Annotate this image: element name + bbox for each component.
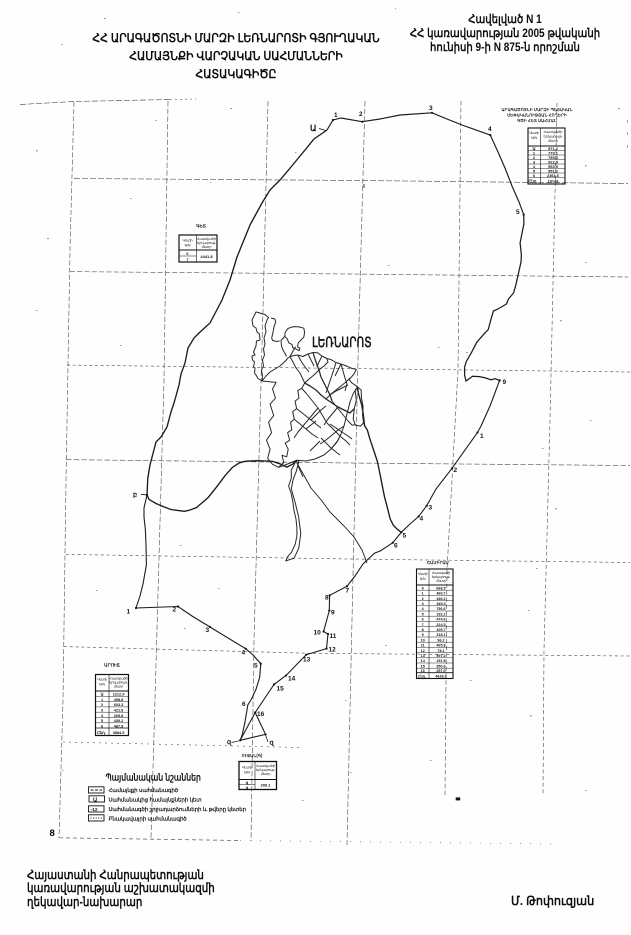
svg-text:4: 4: [420, 516, 424, 523]
svg-text:5: 5: [101, 719, 103, 723]
svg-text:16: 16: [257, 711, 265, 718]
svg-text:2: 2: [422, 597, 424, 601]
svg-text:12: 12: [421, 649, 425, 653]
svg-text:երկարութ.: երկարութ.: [544, 135, 563, 139]
svg-text:6: 6: [101, 724, 103, 728]
svg-text:6: 6: [242, 701, 246, 708]
svg-text:Կետի: Կետի: [97, 678, 107, 682]
svg-text:9: 9: [422, 586, 424, 590]
svg-text:16: 16: [421, 669, 425, 673]
svg-text:4: 4: [488, 126, 492, 133]
svg-text:96.2: 96.2: [437, 638, 444, 642]
svg-text:8: 8: [50, 828, 55, 839]
svg-text:436.2: 436.2: [436, 597, 445, 601]
svg-text:Ընդ.: Ընդ.: [418, 674, 427, 679]
svg-text:13: 13: [303, 657, 311, 664]
svg-text:Ընդ.: Ընդ.: [529, 178, 538, 183]
svg-text:N/N: N/N: [185, 244, 191, 248]
svg-text:N/N: N/N: [420, 577, 426, 581]
svg-text:14: 14: [421, 659, 426, 663]
svg-text:6: 6: [394, 543, 398, 550]
svg-text:3: 3: [206, 627, 210, 634]
svg-text:8: 8: [325, 595, 329, 602]
svg-text:3: 3: [101, 709, 103, 713]
svg-text:8: 8: [422, 628, 424, 632]
svg-text:421.8: 421.8: [114, 709, 124, 713]
svg-text:2: 2: [173, 607, 177, 614]
svg-text:1: 1: [422, 592, 424, 596]
svg-text:15: 15: [421, 664, 425, 668]
svg-text:7: 7: [422, 623, 424, 627]
svg-text:3884.5: 3884.5: [113, 731, 125, 735]
svg-text:498.8: 498.8: [114, 698, 124, 702]
svg-text:ԳԾԻ ՀԵՏ ՍԱՀՄԱՆ: ԳԾԻ ՀԵՏ ՍԱՀՄԱՆ: [517, 118, 557, 123]
svg-text:բ: բ: [133, 492, 137, 499]
svg-text:4628.2: 4628.2: [435, 675, 446, 679]
svg-text:10149: 10149: [548, 178, 560, 183]
svg-text:Կետի: Կետի: [242, 766, 252, 770]
svg-text:6: 6: [533, 173, 536, 178]
svg-text:֊12: ֊12: [91, 807, 98, 813]
svg-text:14: 14: [288, 676, 296, 683]
svg-text:N/N: N/N: [244, 771, 250, 775]
svg-text:2: 2: [101, 703, 103, 707]
svg-text:մետր: մետր: [436, 579, 445, 583]
svg-text:5: 5: [403, 533, 407, 540]
svg-text:2361.6: 2361.6: [547, 173, 560, 178]
svg-text:Պայմանական նշաններ: Պայմանական նշաններ: [106, 772, 202, 784]
svg-text:2: 2: [454, 467, 458, 474]
svg-text:9: 9: [331, 610, 335, 617]
svg-text:զ: զ: [246, 781, 249, 785]
svg-text:597.2: 597.2: [436, 654, 445, 658]
svg-text:մետր: մետր: [261, 772, 271, 776]
svg-text:105.7: 105.7: [436, 628, 445, 632]
svg-text:668.5: 668.5: [436, 586, 445, 590]
svg-text:15: 15: [277, 686, 285, 693]
svg-text:7: 7: [346, 588, 350, 595]
svg-text:474.6: 474.6: [436, 618, 445, 622]
svg-text:Համայնքի սահմանագիծ: Համայնքի սահմանագիծ: [109, 787, 179, 794]
svg-text:3: 3: [429, 505, 433, 512]
svg-text:4: 4: [422, 607, 425, 611]
svg-text:ԱՐՈՒՃ: ԱՐՈՒՃ: [104, 663, 120, 668]
svg-text:5: 5: [422, 612, 424, 616]
svg-text:մետր: մետր: [202, 245, 212, 249]
svg-text:5: 5: [516, 209, 520, 216]
svg-text:350.6: 350.6: [436, 664, 445, 668]
svg-text:3: 3: [429, 105, 433, 112]
svg-text:5: 5: [254, 663, 258, 670]
svg-text:10: 10: [421, 638, 425, 642]
svg-text:Ընդ.: Ընդ.: [97, 730, 106, 735]
svg-text:1212.9: 1212.9: [113, 693, 125, 697]
svg-text:9: 9: [503, 379, 507, 386]
svg-text:4: 4: [101, 714, 104, 718]
svg-text:մետր: մետր: [114, 685, 123, 689]
svg-text:ԼԵՌՆԱՐՈՏ: ԼԵՌՆԱՐՈՏ: [312, 335, 372, 351]
svg-text:Սահմանագծի շրջադարձումների և թ: Սահմանագծի շրջադարձումների և թվերը կետեր: [109, 806, 247, 813]
svg-text:ԱՐԱԳԱԾՈՏՆԻ ՄԱՐԶԻ ՊԵՏԱԿԱՆ: ԱՐԱԳԱԾՈՏՆԻ ՄԱՐԶԻ ՊԵՏԱԿԱՆ: [501, 107, 572, 112]
svg-text:224.5: 224.5: [436, 623, 445, 627]
svg-text:ԳԵՏ: ԳԵՏ: [196, 224, 207, 229]
svg-text:318.1: 318.1: [436, 633, 445, 637]
svg-text:Ա: Ա: [101, 692, 104, 697]
svg-text:756.6: 756.6: [436, 607, 445, 611]
svg-text:Հատվածի: Հատվածի: [544, 130, 563, 134]
svg-text:1: 1: [480, 433, 484, 440]
svg-text:11: 11: [330, 633, 337, 640]
svg-text:439.2: 439.2: [114, 719, 124, 723]
svg-text:Կետի: Կետի: [182, 239, 192, 243]
svg-text:2: 2: [359, 111, 363, 118]
svg-text:Ա: Ա: [310, 123, 317, 133]
svg-text:7: 7: [186, 257, 188, 262]
svg-text:Կետի: Կետի: [529, 131, 539, 135]
svg-text:4: 4: [242, 650, 246, 657]
svg-text:465.8: 465.8: [436, 644, 445, 648]
svg-text:ՈՒՋԱՆ(Գ): ՈՒՋԱՆ(Գ): [242, 753, 263, 758]
svg-text:603.3: 603.3: [114, 703, 124, 707]
svg-text:6: 6: [422, 618, 424, 622]
svg-text:192.2: 192.2: [436, 612, 445, 616]
svg-text:զ: զ: [227, 739, 232, 746]
svg-text:209.1: 209.1: [260, 783, 271, 788]
svg-text:N/N: N/N: [99, 683, 105, 687]
svg-text:13: 13: [421, 654, 425, 658]
svg-text:ՇԱՄԻՐԱՄ: ՇԱՄԻՐԱՄ: [427, 560, 450, 565]
svg-text:6: 6: [186, 251, 189, 256]
svg-text:4441.8: 4441.8: [200, 254, 213, 259]
svg-text:265.8: 265.8: [114, 714, 124, 718]
svg-text:257.0: 257.0: [436, 669, 445, 673]
svg-text:Կետի: Կետի: [418, 572, 428, 576]
svg-text:Բնակավայրի սահմանագիծ: Բնակավայրի սահմանագիծ: [109, 816, 187, 823]
svg-text:345.3: 345.3: [436, 602, 445, 606]
svg-text:ՍԵՓԱԿԱՆՈՒԹՅԱՆ ՀՈՂԵՐԻ: ՍԵՓԱԿԱՆՈՒԹՅԱՆ ՀՈՂԵՐԻ: [507, 113, 567, 118]
svg-text:1: 1: [101, 698, 103, 702]
svg-text:12: 12: [329, 647, 337, 654]
svg-text:1: 1: [334, 112, 338, 119]
svg-text:191.5: 191.5: [436, 659, 445, 663]
svg-text:մետր: մետր: [548, 139, 558, 143]
svg-text:11: 11: [421, 644, 425, 648]
svg-text:N/N: N/N: [531, 136, 537, 140]
svg-text:զ: զ: [270, 740, 275, 747]
svg-text:10: 10: [314, 630, 322, 637]
svg-text:Սահմանակից համայնքների կետ: Սահմանակից համայնքների կետ: [109, 796, 202, 803]
svg-text:487.8: 487.8: [114, 724, 124, 728]
svg-text:78.1: 78.1: [437, 649, 444, 653]
svg-text:3: 3: [422, 602, 424, 606]
svg-text:1: 1: [127, 609, 131, 616]
svg-text:460.7: 460.7: [436, 592, 445, 596]
svg-text:9: 9: [422, 633, 424, 637]
